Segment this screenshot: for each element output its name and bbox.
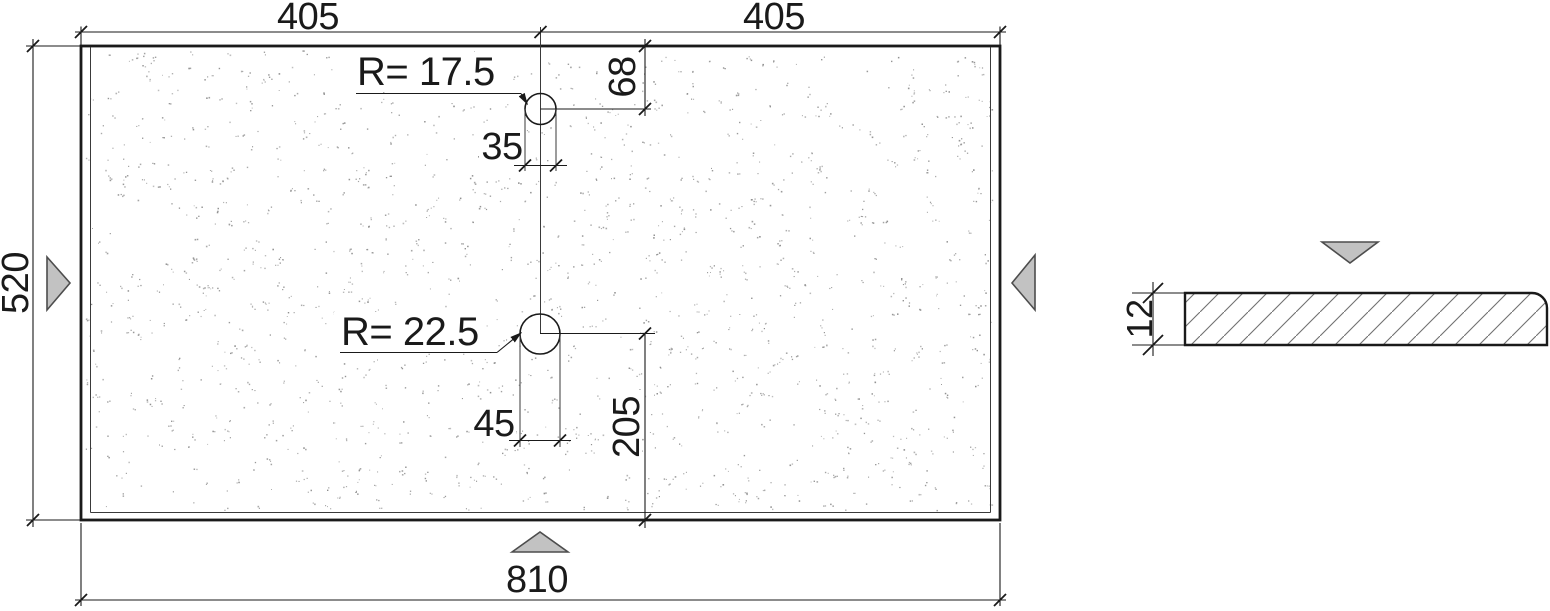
stipple-dot bbox=[433, 206, 434, 207]
stipple-dot bbox=[707, 272, 708, 273]
stipple-dot bbox=[656, 254, 657, 255]
stipple-dot bbox=[785, 495, 786, 496]
stipple-dot bbox=[316, 307, 317, 308]
stipple-dot bbox=[528, 468, 529, 469]
stipple-dot bbox=[97, 282, 99, 284]
stipple-dot bbox=[681, 178, 682, 179]
stipple-dot bbox=[606, 216, 607, 217]
stipple-dot bbox=[253, 469, 254, 470]
stipple-dot bbox=[538, 181, 539, 182]
stipple-dot bbox=[872, 222, 873, 223]
stipple-dot bbox=[583, 244, 584, 245]
stipple-dot bbox=[812, 445, 813, 446]
stipple-dot bbox=[487, 325, 488, 326]
stipple-dot bbox=[817, 481, 819, 483]
stipple-dot bbox=[935, 176, 936, 177]
stipple-dot bbox=[386, 388, 388, 390]
stipple-dot bbox=[707, 314, 708, 315]
stipple-dot bbox=[672, 348, 673, 349]
stipple-dot bbox=[487, 120, 488, 121]
stipple-dot bbox=[761, 395, 762, 396]
stipple-dot bbox=[983, 354, 985, 356]
stipple-dot bbox=[893, 293, 894, 294]
stipple-dot bbox=[614, 292, 616, 294]
stipple-dot bbox=[315, 356, 316, 357]
stipple-dot bbox=[373, 421, 374, 422]
stipple-dot bbox=[268, 210, 269, 211]
stipple-dot bbox=[916, 352, 917, 353]
stipple-dot bbox=[327, 490, 328, 491]
stipple-dot bbox=[408, 432, 409, 433]
stipple-dot bbox=[98, 243, 99, 244]
stipple-dot bbox=[886, 222, 887, 223]
stipple-dot bbox=[745, 279, 746, 280]
stipple-dot bbox=[327, 506, 328, 507]
stipple-dot bbox=[873, 192, 874, 193]
stipple-dot bbox=[880, 374, 881, 375]
stipple-dot bbox=[615, 200, 616, 201]
stipple-dot bbox=[645, 278, 646, 279]
stipple-dot bbox=[853, 493, 854, 494]
stipple-dot bbox=[810, 251, 811, 252]
stipple-dot bbox=[554, 399, 555, 400]
stipple-dot bbox=[576, 434, 577, 435]
stipple-dot bbox=[356, 170, 357, 171]
stipple-dot bbox=[465, 248, 466, 249]
stipple-dot bbox=[656, 110, 657, 111]
stipple-dot bbox=[861, 280, 862, 281]
stipple-dot bbox=[249, 384, 250, 385]
stipple-dot bbox=[630, 126, 632, 128]
stipple-dot bbox=[854, 235, 855, 236]
stipple-dot bbox=[911, 464, 912, 465]
stipple-dot bbox=[583, 326, 584, 327]
stipple-dot bbox=[952, 430, 954, 432]
stipple-dot bbox=[179, 358, 180, 359]
stipple-dot bbox=[271, 464, 273, 466]
stipple-dot bbox=[963, 401, 964, 402]
stipple-dot bbox=[931, 203, 932, 204]
stipple-dot bbox=[870, 131, 871, 132]
section-bar bbox=[1185, 293, 1547, 345]
stipple-dot bbox=[366, 172, 367, 173]
stipple-dot bbox=[472, 175, 474, 177]
stipple-dot bbox=[977, 350, 978, 351]
stipple-dot bbox=[794, 317, 795, 318]
stipple-dot bbox=[110, 177, 111, 178]
stipple-dot bbox=[239, 329, 240, 330]
stipple-dot bbox=[527, 473, 528, 474]
stipple-dot bbox=[108, 98, 109, 99]
stipple-dot bbox=[763, 490, 764, 491]
stipple-dot bbox=[350, 278, 351, 279]
stipple-dot bbox=[253, 264, 254, 265]
stipple-dot bbox=[407, 134, 408, 135]
stipple-dot bbox=[800, 302, 801, 303]
stipple-dot bbox=[348, 282, 349, 283]
stipple-dot bbox=[884, 242, 885, 243]
stipple-dot bbox=[714, 475, 716, 477]
stipple-dot bbox=[721, 277, 722, 278]
stipple-dot bbox=[579, 67, 581, 69]
stipple-dot bbox=[368, 299, 369, 300]
stipple-dot bbox=[817, 168, 818, 169]
stipple-dot bbox=[316, 380, 317, 381]
stipple-dot bbox=[351, 291, 352, 292]
stipple-dot bbox=[111, 305, 113, 307]
stipple-dot bbox=[950, 260, 951, 261]
stipple-dot bbox=[478, 463, 480, 465]
stipple-dot bbox=[381, 102, 382, 103]
stipple-dot bbox=[574, 104, 575, 105]
stipple-dot bbox=[552, 400, 554, 402]
stipple-dot bbox=[739, 122, 740, 123]
stipple-dot bbox=[985, 292, 987, 294]
stipple-dot bbox=[730, 316, 731, 317]
stipple-dot bbox=[162, 75, 163, 76]
stipple-dot bbox=[772, 396, 773, 397]
stipple-dot bbox=[322, 386, 323, 387]
stipple-dot bbox=[573, 266, 574, 267]
stipple-dot bbox=[745, 355, 746, 356]
stipple-dot bbox=[608, 215, 609, 216]
stipple-dot bbox=[153, 60, 154, 61]
stipple-dot bbox=[903, 300, 904, 301]
stipple-dot bbox=[254, 350, 255, 351]
stipple-dot bbox=[572, 88, 574, 90]
stipple-dot bbox=[584, 307, 585, 308]
stipple-dot bbox=[530, 375, 531, 376]
stipple-dot bbox=[203, 293, 204, 294]
stipple-dot bbox=[835, 476, 837, 478]
stipple-dot bbox=[164, 120, 165, 121]
stipple-dot bbox=[236, 388, 237, 389]
stipple-dot bbox=[737, 162, 738, 163]
stipple-dot bbox=[206, 146, 208, 148]
stipple-dot bbox=[196, 207, 198, 209]
stipple-dot bbox=[774, 144, 775, 145]
stipple-dot bbox=[229, 224, 231, 226]
stipple-dot bbox=[908, 88, 910, 90]
stipple-dot bbox=[137, 58, 138, 59]
stipple-dot bbox=[592, 326, 593, 327]
stipple-dot bbox=[507, 188, 508, 189]
stipple-dot bbox=[133, 408, 134, 409]
stipple-dot bbox=[674, 60, 675, 61]
stipple-dot bbox=[456, 477, 457, 478]
stipple-dot bbox=[367, 249, 368, 250]
stipple-dot bbox=[946, 344, 948, 346]
stipple-dot bbox=[254, 390, 255, 391]
stipple-dot bbox=[130, 395, 131, 396]
stipple-dot bbox=[818, 116, 819, 117]
stipple-dot bbox=[369, 370, 370, 371]
stipple-dot bbox=[558, 436, 560, 438]
stipple-dot bbox=[140, 339, 141, 340]
stipple-dot bbox=[609, 378, 611, 380]
stipple-dot bbox=[847, 447, 848, 448]
stipple-dot bbox=[952, 137, 953, 138]
stipple-dot bbox=[118, 91, 119, 92]
stipple-dot bbox=[374, 361, 375, 362]
stipple-dot bbox=[218, 370, 219, 371]
stipple-dot bbox=[826, 345, 828, 347]
stipple-dot bbox=[911, 428, 913, 430]
stipple-dot bbox=[695, 216, 696, 217]
stipple-dot bbox=[107, 436, 108, 437]
stipple-dot bbox=[892, 161, 893, 162]
stipple-dot bbox=[458, 485, 459, 486]
stipple-dot bbox=[972, 349, 973, 350]
stipple-dot bbox=[231, 221, 232, 222]
stipple-dot bbox=[457, 435, 459, 437]
stipple-dot bbox=[537, 260, 538, 261]
stipple-dot bbox=[721, 101, 722, 102]
stipple-dot bbox=[499, 345, 500, 346]
stipple-dot bbox=[430, 493, 431, 494]
stipple-dot bbox=[462, 398, 463, 399]
stipple-dot bbox=[947, 438, 948, 439]
stipple-dot bbox=[670, 239, 671, 240]
stipple-dot bbox=[989, 486, 990, 487]
stipple-dot bbox=[667, 386, 668, 387]
stipple-dot bbox=[171, 203, 172, 204]
stipple-dot bbox=[108, 175, 109, 176]
stipple-dot bbox=[340, 391, 342, 393]
stipple-dot bbox=[959, 259, 960, 260]
stipple-dot bbox=[654, 331, 655, 332]
stipple-dot bbox=[215, 224, 216, 225]
stipple-dot bbox=[989, 362, 990, 363]
stipple-dot bbox=[96, 426, 98, 428]
stipple-dot bbox=[390, 143, 392, 145]
stipple-dot bbox=[321, 144, 322, 145]
stipple-dot bbox=[632, 349, 633, 350]
stipple-dot bbox=[361, 263, 363, 265]
stipple-dot bbox=[326, 223, 327, 224]
stipple-dot bbox=[507, 104, 508, 105]
stipple-dot bbox=[976, 201, 977, 202]
stipple-dot bbox=[670, 134, 671, 135]
stipple-dot bbox=[309, 133, 310, 134]
stipple-dot bbox=[365, 184, 367, 186]
stipple-dot bbox=[684, 229, 686, 231]
stipple-dot bbox=[742, 139, 743, 140]
stipple-dot bbox=[234, 279, 235, 280]
stipple-dot bbox=[168, 164, 170, 166]
stipple-dot bbox=[207, 126, 208, 127]
stipple-dot bbox=[605, 137, 606, 138]
stipple-dot bbox=[723, 270, 724, 271]
stipple-dot bbox=[823, 438, 824, 439]
stipple-dot bbox=[238, 391, 240, 393]
stipple-dot bbox=[900, 439, 901, 440]
stipple-dot bbox=[301, 305, 303, 307]
stipple-dot bbox=[586, 117, 587, 118]
stipple-dot bbox=[756, 201, 757, 202]
stipple-dot bbox=[637, 376, 638, 377]
stipple-dot bbox=[651, 341, 652, 342]
stipple-dot bbox=[609, 252, 610, 253]
stipple-dot bbox=[193, 129, 195, 131]
stipple-dot bbox=[639, 374, 640, 375]
stipple-dot bbox=[484, 193, 485, 194]
stipple-dot bbox=[124, 144, 125, 145]
stipple-dot bbox=[737, 133, 738, 134]
stipple-dot bbox=[887, 160, 888, 161]
stipple-dot bbox=[131, 393, 132, 394]
stipple-dot bbox=[985, 305, 987, 307]
stipple-dot bbox=[870, 134, 872, 136]
stipple-dot bbox=[167, 184, 168, 185]
stipple-dot bbox=[754, 198, 755, 199]
stipple-dot bbox=[501, 189, 502, 190]
stipple-dot bbox=[862, 216, 863, 217]
stipple-dot bbox=[650, 432, 651, 433]
stipple-dot bbox=[328, 211, 330, 213]
stipple-dot bbox=[294, 95, 295, 96]
stipple-dot bbox=[402, 474, 404, 476]
stipple-dot bbox=[681, 260, 682, 261]
stipple-dot bbox=[99, 285, 100, 286]
stipple-dot bbox=[123, 495, 125, 497]
stipple-dot bbox=[860, 418, 862, 420]
stipple-dot bbox=[663, 240, 664, 241]
dim-top-left-label: 405 bbox=[277, 0, 339, 38]
stipple-dot bbox=[961, 144, 963, 146]
stipple-dot bbox=[897, 313, 899, 315]
stipple-dot bbox=[232, 277, 234, 279]
stipple-dot bbox=[473, 106, 474, 107]
stipple-dot bbox=[454, 138, 455, 139]
stipple-dot bbox=[985, 254, 986, 255]
stipple-dot bbox=[271, 207, 272, 208]
stipple-dot bbox=[86, 158, 87, 159]
stipple-dot bbox=[269, 77, 270, 78]
stipple-dot bbox=[639, 308, 640, 309]
stipple-dot bbox=[863, 201, 864, 202]
stipple-dot bbox=[343, 487, 344, 488]
stipple-dot bbox=[325, 323, 326, 324]
stipple-dot bbox=[307, 478, 308, 479]
stipple-dot bbox=[914, 357, 915, 358]
stipple-dot bbox=[580, 192, 582, 194]
stipple-dot bbox=[174, 178, 175, 179]
stipple-dot bbox=[513, 231, 514, 232]
stipple-dot bbox=[415, 204, 417, 206]
stipple-dot bbox=[339, 389, 341, 391]
stipple-dot bbox=[470, 477, 471, 478]
stipple-dot bbox=[793, 424, 795, 426]
stipple-dot bbox=[385, 385, 386, 386]
stipple-dot bbox=[192, 127, 194, 129]
stipple-dot bbox=[631, 165, 632, 166]
stipple-dot bbox=[343, 123, 344, 124]
stipple-dot bbox=[748, 480, 749, 481]
stipple-dot bbox=[941, 384, 942, 385]
stipple-dot bbox=[741, 466, 742, 467]
stipple-dot bbox=[777, 243, 779, 245]
stipple-dot bbox=[418, 239, 419, 240]
stipple-dot bbox=[292, 188, 293, 189]
stipple-dot bbox=[123, 451, 124, 452]
stipple-dot bbox=[813, 253, 814, 254]
stipple-dot bbox=[303, 305, 304, 306]
stipple-dot bbox=[719, 271, 721, 273]
stipple-dot bbox=[681, 213, 682, 214]
stipple-dot bbox=[737, 92, 738, 93]
stipple-dot bbox=[628, 501, 630, 503]
stipple-dot bbox=[576, 438, 577, 439]
stipple-dot bbox=[633, 203, 634, 204]
stipple-dot bbox=[593, 127, 594, 128]
stipple-dot bbox=[111, 321, 112, 322]
stipple-dot bbox=[825, 335, 826, 336]
stipple-dot bbox=[395, 135, 396, 136]
stipple-dot bbox=[751, 124, 752, 125]
stipple-dot bbox=[568, 276, 569, 277]
stipple-dot bbox=[669, 483, 671, 485]
stipple-dot bbox=[606, 228, 608, 230]
stipple-dot bbox=[155, 400, 156, 401]
stipple-dot bbox=[504, 187, 505, 188]
stipple-dot bbox=[99, 411, 100, 412]
stipple-dot bbox=[674, 437, 676, 439]
stipple-dot bbox=[431, 208, 432, 209]
stipple-dot bbox=[286, 324, 287, 325]
stipple-dot bbox=[820, 171, 822, 173]
stipple-dot bbox=[947, 395, 948, 396]
stipple-dot bbox=[203, 288, 205, 290]
stipple-dot bbox=[550, 127, 551, 128]
stipple-dot bbox=[953, 432, 954, 433]
stipple-dot bbox=[315, 121, 316, 122]
stipple-dot bbox=[917, 354, 918, 355]
stipple-dot bbox=[801, 162, 802, 163]
stipple-dot bbox=[531, 359, 532, 360]
stipple-dot bbox=[258, 506, 260, 508]
stipple-dot bbox=[105, 170, 107, 172]
stipple-dot bbox=[752, 329, 753, 330]
stipple-dot bbox=[754, 204, 755, 205]
stipple-dot bbox=[665, 57, 666, 58]
stipple-dot bbox=[713, 341, 714, 342]
stipple-dot bbox=[452, 103, 453, 104]
stipple-dot bbox=[782, 214, 784, 216]
stipple-dot bbox=[88, 114, 89, 115]
stipple-dot bbox=[744, 272, 745, 273]
stipple-dot bbox=[735, 495, 736, 496]
stipple-dot bbox=[927, 172, 929, 174]
stipple-dot bbox=[538, 261, 540, 263]
stipple-dot bbox=[158, 90, 160, 92]
stipple-dot bbox=[595, 326, 596, 327]
stipple-dot bbox=[278, 176, 279, 177]
stipple-dot bbox=[470, 107, 471, 108]
stipple-dot bbox=[269, 303, 270, 304]
stipple-dot bbox=[949, 91, 951, 93]
stipple-dot bbox=[753, 316, 755, 318]
stipple-dot bbox=[825, 394, 826, 395]
stipple-dot bbox=[87, 382, 88, 383]
stipple-dot bbox=[903, 284, 904, 285]
stipple-dot bbox=[505, 455, 506, 456]
stipple-dot bbox=[190, 68, 192, 70]
stipple-dot bbox=[782, 359, 783, 360]
stipple-dot bbox=[973, 337, 975, 339]
stipple-dot bbox=[745, 502, 746, 503]
stipple-dot bbox=[392, 484, 393, 485]
